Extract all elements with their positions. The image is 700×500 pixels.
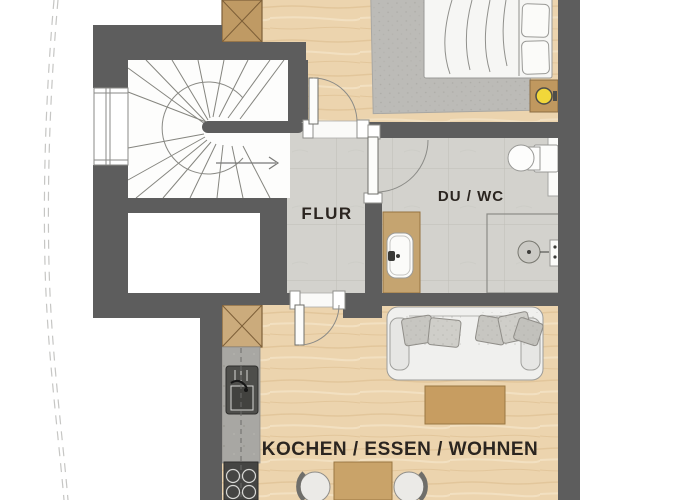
stair-handrail: [202, 121, 304, 133]
kitchen-sink: [226, 366, 258, 414]
site-boundary-line: [44, 0, 68, 500]
bedroom-door-leaf: [309, 78, 318, 124]
faucet-icon: [388, 251, 395, 261]
wall-bath-flur: [365, 195, 382, 293]
hallway-label: FLUR: [301, 204, 352, 223]
kitchen-tall-cabinet: [222, 305, 262, 347]
wall-right: [558, 0, 580, 500]
wall-bedroom-stairs-v: [288, 60, 308, 122]
void-area: [128, 213, 260, 293]
dining-chair-right: [394, 472, 426, 500]
spiral-staircase: [128, 60, 304, 198]
kitchen: [222, 305, 262, 500]
bathroom-door-leaf: [368, 137, 378, 194]
toilet: [508, 145, 558, 172]
wall-bath-bottom: [382, 293, 558, 306]
wall-left-lower: [93, 165, 128, 293]
window: [94, 88, 128, 165]
wall-flur-bottom-left: [93, 293, 222, 318]
nightstand: [530, 80, 558, 112]
wall-bedroom-bottom: [365, 122, 558, 138]
lamp-icon: [536, 88, 552, 104]
wardrobe: [222, 0, 262, 42]
living-door-leaf: [295, 305, 304, 345]
dining-table: [334, 462, 392, 500]
wall-bath-bottom-corner: [343, 293, 382, 318]
floor-plan: FLUR DU / WC KOCHEN / ESSEN / WOHNEN: [0, 0, 700, 500]
washbasin-vanity: [383, 212, 420, 293]
wall-kitchen-left: [200, 315, 222, 500]
floor-plan-svg: FLUR DU / WC KOCHEN / ESSEN / WOHNEN: [0, 0, 700, 500]
wall-flur-bottom-mid: [222, 293, 292, 305]
wall-void-right: [260, 198, 287, 293]
coffee-table: [425, 386, 505, 424]
sofa: [387, 307, 544, 380]
bathroom-label: DU / WC: [438, 188, 504, 205]
living-label: KOCHEN / ESSEN / WOHNEN: [262, 439, 538, 460]
wall-top: [93, 25, 222, 60]
bed: [424, 0, 552, 78]
dining-chair-left: [298, 472, 330, 500]
wall-bedroom-stairs-h: [222, 42, 306, 60]
